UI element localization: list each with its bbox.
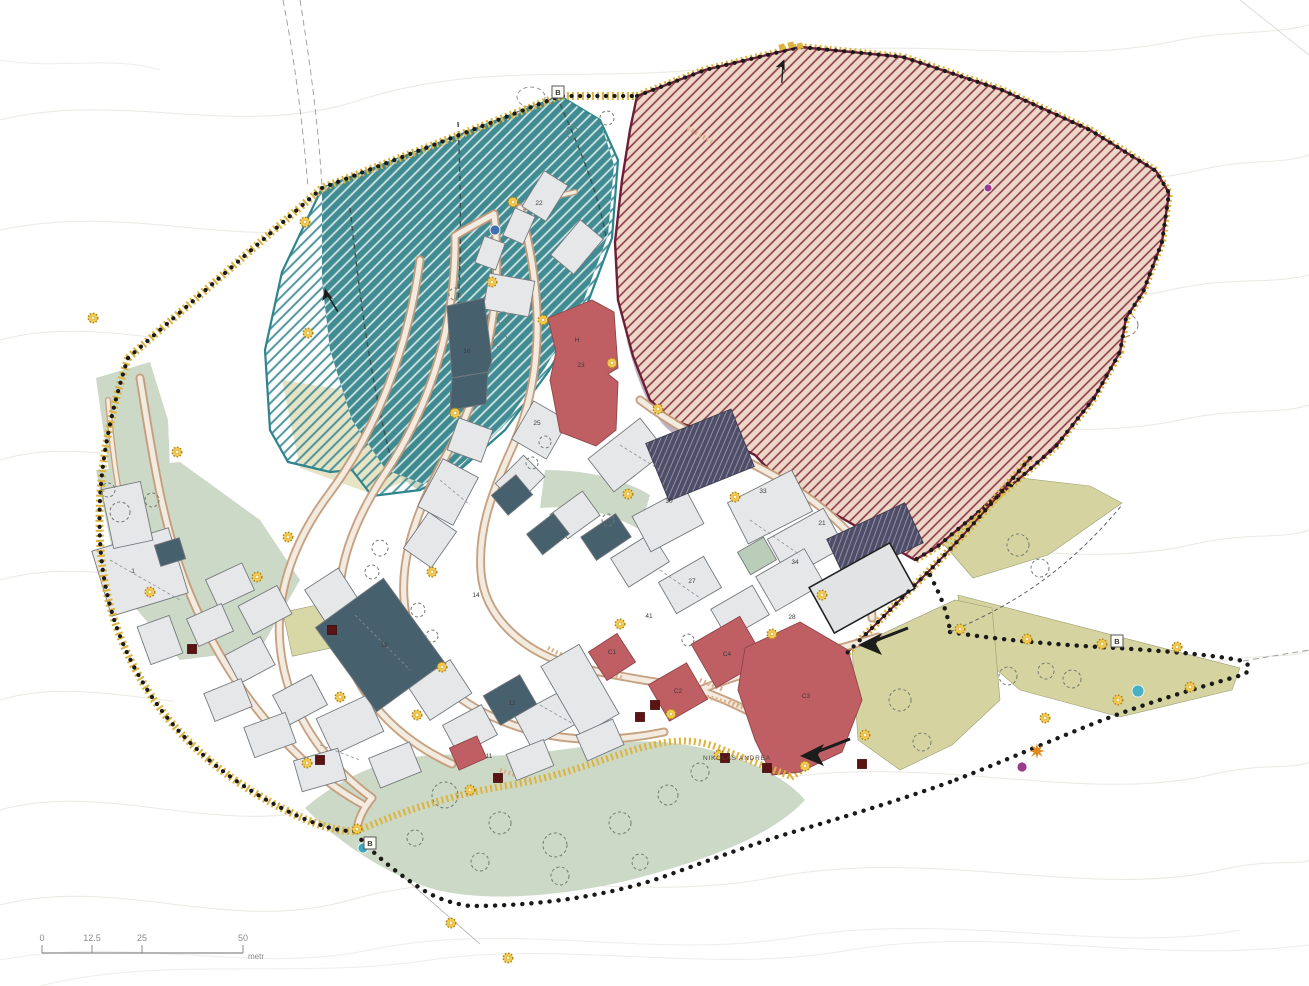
streetlight-icon — [503, 953, 513, 963]
streetlight-icon — [1113, 695, 1123, 705]
building-number: 30 — [665, 498, 673, 505]
scale-unit-label: metr — [248, 952, 264, 961]
streetlight-icon — [283, 532, 293, 542]
streetlight-icon — [730, 492, 740, 502]
wall-square-marker — [188, 645, 197, 654]
streetlight-icon — [437, 662, 447, 672]
streetlight-icon — [1022, 634, 1032, 644]
streetlight-icon — [623, 489, 633, 499]
building-number: 34 — [791, 559, 799, 566]
building-number: 27 — [688, 578, 696, 585]
star-symbol — [1029, 743, 1045, 759]
wall-square-marker — [651, 701, 660, 710]
streetlight-icon — [860, 730, 870, 740]
streetlight-icon — [538, 315, 548, 325]
tree-icon — [1031, 559, 1049, 577]
zone-marker: B — [1111, 635, 1123, 647]
building-number: 12 — [508, 700, 516, 707]
streetlight-icon — [607, 358, 617, 368]
building-number: 21 — [818, 520, 826, 527]
streetlight-icon — [300, 217, 310, 227]
streetlight-icon — [412, 710, 422, 720]
streetlight-icon — [172, 447, 182, 457]
wall-square-marker — [328, 626, 337, 635]
streetlight-icon — [252, 572, 262, 582]
building-number: 1 — [131, 568, 135, 575]
building-number: C1 — [608, 649, 617, 656]
streetlight-icon — [1172, 642, 1182, 652]
svg-text:B: B — [367, 839, 373, 848]
streetlight-icon — [302, 758, 312, 768]
streetlight-icon — [817, 590, 827, 600]
streetlight-icon — [653, 404, 663, 414]
building-number: 41 — [645, 613, 653, 620]
streetlight-icon — [303, 328, 313, 338]
building-number: 14 — [472, 592, 480, 599]
streetlight-icon — [465, 785, 475, 795]
building-number: C4 — [723, 651, 732, 658]
building-number: 23 — [577, 362, 585, 369]
streetlight-icon — [352, 824, 362, 834]
streetlight-icon — [450, 408, 460, 418]
streetlight-icon — [615, 619, 625, 629]
building-number: 25 — [533, 420, 541, 427]
streetlight-icon — [145, 587, 155, 597]
streetlight-icon — [427, 567, 437, 577]
scale-tick-label: 0 — [39, 933, 44, 943]
scale-tick-label: 50 — [238, 933, 248, 943]
sun-star-icon — [1029, 743, 1045, 759]
site-plan-canvas: BBB 2216H232530274121333428113121411C1C2… — [0, 0, 1309, 986]
streetlight-icon — [487, 277, 497, 287]
wall-square-marker — [636, 713, 645, 722]
streetlight-icon — [955, 624, 965, 634]
streetlight-icon — [1040, 713, 1050, 723]
blue-dot-icon — [490, 225, 500, 235]
streetlight-icon — [508, 197, 518, 207]
building-number: H — [575, 337, 580, 344]
wall-square-marker — [494, 774, 503, 783]
streetlight-icon — [446, 918, 456, 928]
building-number: 28 — [788, 614, 796, 621]
building-number: 22 — [535, 200, 543, 207]
streetlight-icon — [767, 629, 777, 639]
building-number: 13 — [380, 642, 388, 649]
streetlight-icon — [800, 761, 810, 771]
streetlight-icon — [1097, 639, 1107, 649]
zone-marker: B — [552, 86, 564, 98]
svg-text:B: B — [555, 88, 561, 97]
streetlight-icon — [666, 709, 676, 719]
building-number: C3 — [802, 693, 811, 700]
map-text-labels: NIKOLAS ANDREA — [703, 755, 771, 762]
purple-dot-icon — [984, 184, 992, 192]
site-plan-svg: BBB 2216H232530274121333428113121411C1C2… — [0, 0, 1309, 986]
wall-square-marker — [763, 764, 772, 773]
zone-marker: B — [364, 837, 376, 849]
building-number: C2 — [674, 688, 683, 695]
svg-text:B: B — [1114, 637, 1120, 646]
streetlight-icon — [335, 692, 345, 702]
scale-tick-label: 25 — [137, 933, 147, 943]
place-label: NIKOLAS ANDREA — [703, 755, 771, 762]
wall-square-marker — [858, 760, 867, 769]
streetlight-icon — [1185, 682, 1195, 692]
building-number: 16 — [463, 348, 471, 355]
scale-tick-label: 12.5 — [83, 933, 101, 943]
streetlight-icon — [88, 313, 98, 323]
purple-dot-icon — [1017, 762, 1027, 772]
building-number: 11 — [486, 753, 493, 760]
cyan-dot-icon — [1132, 685, 1144, 697]
wall-square-marker — [316, 756, 325, 765]
building-number: 33 — [759, 488, 767, 495]
